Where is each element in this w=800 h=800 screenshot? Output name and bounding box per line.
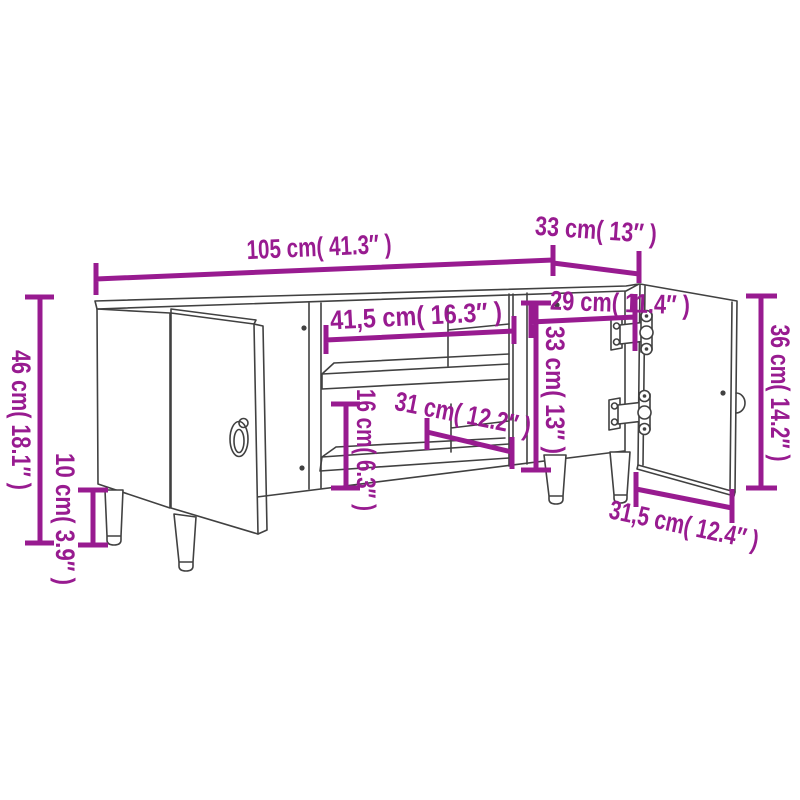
bottom-front-edge [257, 451, 624, 497]
tv-stand-dimension-diagram: 105 cm( 41.3″ ) 33 cm( 13″ ) 46 cm( 18.1… [0, 0, 800, 800]
left-side-panel [97, 309, 170, 508]
dimension-right-opening-height: 33 cm( 13″ ) [521, 303, 570, 470]
middle-shelf [322, 354, 509, 389]
dimension-right-door-width: 31,5 cm( 12.4″ ) [607, 472, 762, 555]
screw-dot [301, 325, 306, 330]
right-door-handle-edge [736, 393, 745, 413]
dimension-overall-height: 46 cm( 18.1″ ) [6, 297, 54, 543]
dimension-label-right-opening-height: 33 cm( 13″ ) [540, 326, 570, 454]
dimension-line [553, 251, 639, 283]
dimension-label-leg-height: 10 cm( 3.9″ ) [50, 453, 80, 585]
hinge-bottom [609, 391, 651, 435]
dimension-leg-height: 10 cm( 3.9″ ) [50, 453, 108, 585]
left-door-open [171, 309, 267, 534]
dimension-label-right-door-height: 36 cm( 14.2″ ) [765, 325, 795, 462]
left-divider-panel [309, 303, 321, 489]
dimension-label-middle-opening-width: 41,5 cm( 16.3″ ) [329, 297, 502, 336]
dimension-middle-opening-width: 41,5 cm( 16.3″ ) [326, 297, 514, 354]
dimension-line [78, 490, 108, 545]
leg-front-left [174, 514, 196, 571]
dimension-right-door-height: 36 cm( 14.2″ ) [746, 296, 795, 488]
dimension-label-right-door-width: 31,5 cm( 12.4″ ) [607, 495, 762, 556]
hinge-cup [638, 406, 651, 419]
hinge-screw-dot [643, 427, 647, 431]
left-door-panel [171, 313, 258, 534]
dimension-label-overall-width: 105 cm( 41.3″ ) [246, 229, 392, 265]
hinge-screw-dot [643, 394, 647, 398]
dimension-overall-width: 105 cm( 41.3″ ) [96, 229, 553, 295]
dimension-label-overall-depth: 33 cm( 13″ ) [534, 211, 658, 249]
dimension-lower-opening-height: 16 cm( 6.3″ ) [331, 389, 381, 511]
diagram-page: 105 cm( 41.3″ ) 33 cm( 13″ ) 46 cm( 18.1… [0, 0, 800, 800]
right-door-handle-dot [720, 390, 725, 395]
dimension-label-lower-opening-height: 16 cm( 6.3″ ) [351, 389, 381, 511]
dimension-label-right-opening-width: 29 cm( 11.4″ ) [550, 286, 691, 321]
hinge-cup [640, 326, 653, 339]
leg-back-left [105, 490, 123, 545]
screw-dot [299, 465, 304, 470]
hinge-screw-dot [645, 347, 649, 351]
leg-front-middle [544, 455, 566, 504]
dimension-label-overall-height: 46 cm( 18.1″ ) [6, 350, 36, 490]
